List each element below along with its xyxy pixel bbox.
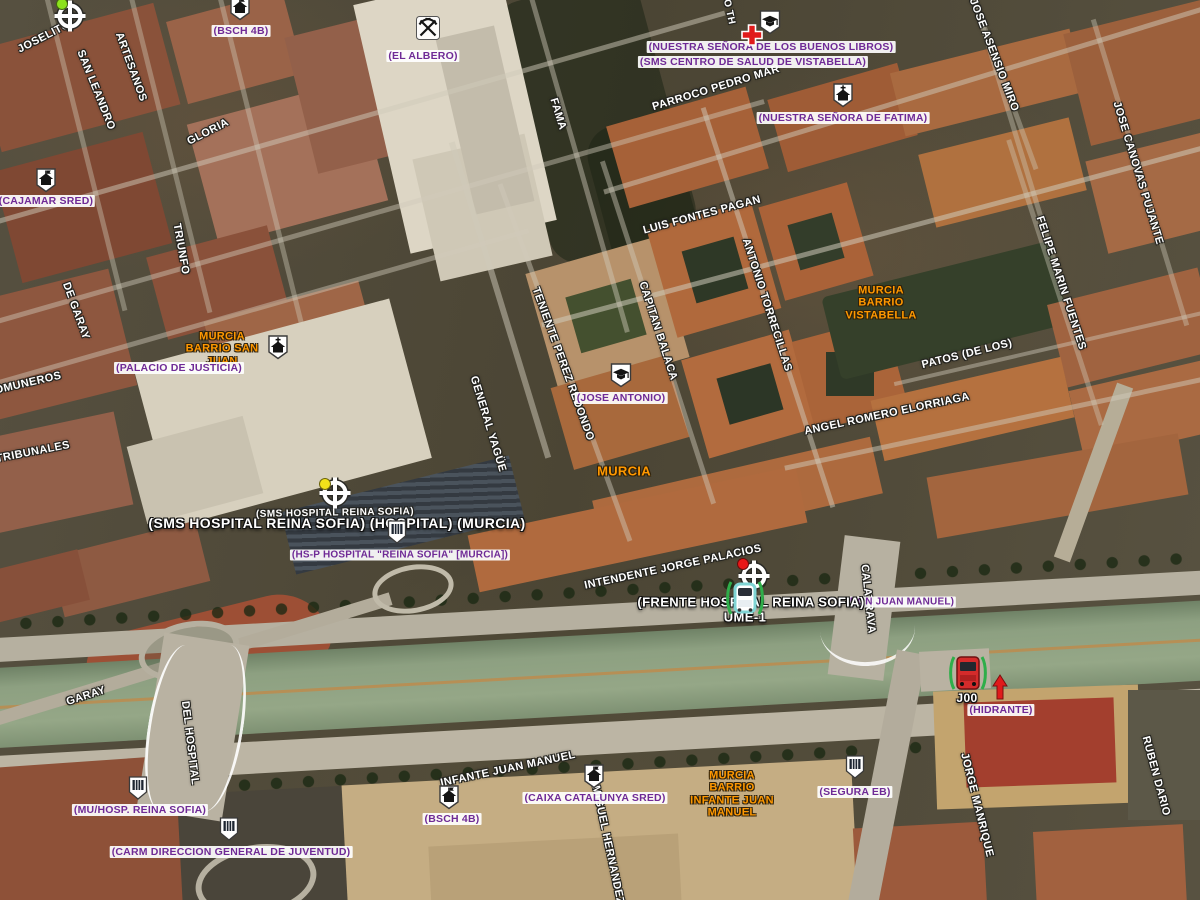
branch-poi-icon[interactable] (583, 764, 605, 789)
poi-label[interactable]: (PALACIO DE JUSTICIA) (114, 362, 244, 374)
works-poi-icon[interactable] (416, 16, 441, 41)
poi-label[interactable]: (NUESTRA SEÑORA DE LOS BUENOS LIBROS) (647, 41, 896, 53)
shield-poi-icon[interactable] (845, 755, 866, 780)
branch-poi-icon[interactable] (438, 785, 460, 810)
poi-label[interactable]: (SEGURA EB) (817, 786, 892, 798)
poi-label[interactable]: (HS-P HOSPITAL "REINA SOFIA" [MURCIA]) (290, 550, 510, 561)
building-block (927, 433, 1189, 538)
building-block (0, 411, 133, 533)
transport-unit-icon[interactable] (945, 652, 991, 694)
shield-poi-icon[interactable] (219, 817, 240, 842)
school-poi-icon[interactable] (610, 363, 633, 388)
shield-poi-icon[interactable] (128, 776, 149, 801)
street-label: GENERAL YAGÜE (468, 375, 509, 474)
ambulance-unit-icon[interactable] (722, 575, 768, 621)
poi-label[interactable]: (CARM DIRECCION GENERAL DE JUVENTUD) (110, 846, 353, 858)
highlight-label: (SMS HOSPITAL REINA SOFIA) (HOSPITAL) (M… (148, 515, 525, 531)
district-label: MURCIA BARRIO INFANTE JUAN MANUEL (690, 769, 774, 818)
poi-label[interactable]: (MU/HOSP. REINA SOFIA) (72, 804, 208, 816)
hydrant-arrow-icon[interactable] (992, 674, 1008, 700)
district-label: MURCIA BARRIO VISTABELLA (845, 285, 916, 322)
poi-label[interactable]: (CAJAMAR SRED) (0, 195, 95, 207)
map-viewport[interactable]: JOSELITOSAN LEANDROARTESANOSGLORIATRIUNF… (0, 0, 1200, 900)
building-block (1063, 0, 1200, 146)
shield-poi-icon[interactable] (387, 520, 408, 545)
branch-poi-icon[interactable] (229, 0, 251, 21)
district-label: MURCIA (597, 465, 651, 480)
poi-label[interactable]: (SMS CENTRO DE SALUD DE VISTABELLA) (638, 56, 868, 68)
branch-poi-icon[interactable] (35, 168, 57, 193)
poi-label[interactable]: (JOSE ANTONIO) (575, 392, 668, 404)
poi-label[interactable]: (NUESTRA SEÑORA DE FATIMA) (757, 112, 930, 124)
church-poi-icon[interactable] (832, 83, 854, 108)
building-block (918, 117, 1087, 227)
health-center-icon[interactable] (740, 23, 764, 47)
poi-label[interactable]: (EL ALBERO) (386, 50, 459, 62)
street-label: O TH (721, 0, 737, 26)
building-block (1033, 824, 1187, 900)
poi-label[interactable]: (CAIXA CATALUNYA SRED) (522, 792, 667, 804)
status-dot (319, 478, 331, 490)
church-poi-icon[interactable] (267, 335, 289, 360)
poi-label[interactable]: (HIDRANTE) (967, 704, 1034, 716)
poi-label[interactable]: (BSCH 4B) (212, 25, 271, 37)
status-dot (737, 558, 749, 570)
poi-label[interactable]: (BSCH 4B) (423, 813, 482, 825)
